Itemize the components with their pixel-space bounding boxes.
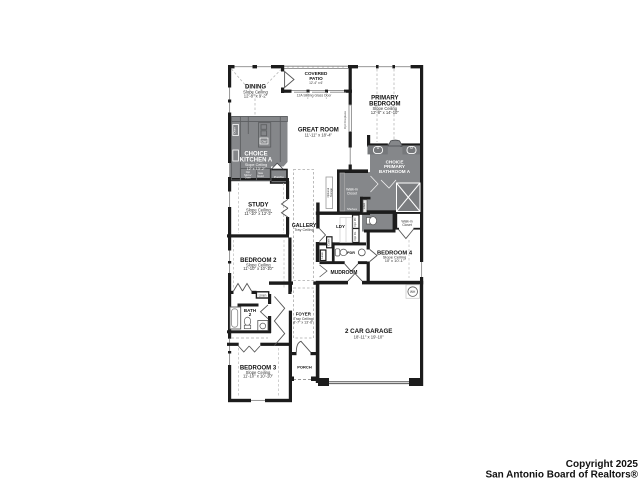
svg-text:MUDROOM: MUDROOM (331, 270, 358, 276)
svg-text:Oven: Oven (233, 127, 237, 134)
svg-text:Linen: Linen (259, 294, 267, 298)
svg-text:San Antonio Board of Realtors®: San Antonio Board of Realtors® (485, 470, 638, 480)
svg-text:12'-4" x 6': 12'-4" x 6' (309, 81, 323, 85)
svg-text:Closet: Closet (402, 223, 412, 227)
svg-text:Hood: Hood (257, 174, 264, 178)
svg-text:Linen: Linen (362, 202, 366, 209)
svg-text:12'-8" x 9'-2": 12'-8" x 9'-2" (244, 94, 268, 99)
svg-text:Coats: Coats (326, 238, 330, 246)
svg-text:PORCH: PORCH (297, 365, 312, 370)
svg-text:PDR: PDR (347, 251, 355, 255)
svg-text:10' x 10'-1": 10' x 10'-1" (385, 258, 405, 263)
svg-text:11'-11" x 18'-4": 11'-11" x 18'-4" (305, 133, 333, 138)
svg-text:Tray Ceiling: Tray Ceiling (294, 228, 314, 232)
svg-text:Oven: Oven (245, 176, 252, 180)
svg-text:11'-10" x 10'-10": 11'-10" x 10'-10" (243, 374, 274, 379)
svg-text:11'-10" x 10'-10": 11'-10" x 10'-10" (243, 266, 274, 271)
svg-text:DW: DW (262, 140, 267, 144)
svg-text:18'-11" x 19'-10": 18'-11" x 19'-10" (354, 335, 385, 340)
svg-text:12'-8" x 14'-10": 12'-8" x 14'-10" (371, 110, 400, 115)
svg-text:12A Sliding Glass Door: 12A Sliding Glass Door (297, 93, 333, 97)
svg-text:Linen: Linen (320, 252, 324, 259)
svg-text:LDY: LDY (336, 224, 345, 229)
svg-text:Closet: Closet (347, 191, 357, 195)
svg-text:Opt PC: Opt PC (353, 217, 357, 226)
svg-text:Storage: Storage (329, 188, 333, 198)
svg-text:Opt Fireplace: Opt Fireplace (343, 111, 347, 129)
svg-text:Shelves: Shelves (347, 207, 358, 211)
svg-text:BATHROOM A: BATHROOM A (379, 169, 411, 174)
svg-text:8'-7" x 13'-6": 8'-7" x 13'-6" (293, 321, 314, 325)
svg-text:12' x 13'-2": 12' x 13'-2" (247, 167, 266, 171)
svg-text:Opt DL: Opt DL (353, 231, 357, 240)
svg-text:WH: WH (410, 290, 416, 294)
svg-text:11'-10" x 12'-2": 11'-10" x 12'-2" (244, 211, 272, 216)
svg-text:FOYER: FOYER (296, 311, 312, 316)
svg-text:Copyright 2025: Copyright 2025 (566, 459, 639, 470)
